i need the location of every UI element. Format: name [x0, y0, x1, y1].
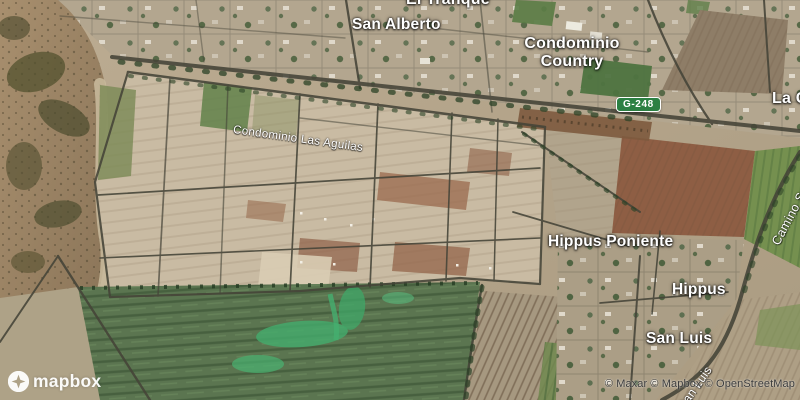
mapbox-wordmark: mapbox — [33, 371, 101, 392]
route-shield-g248: G-248 — [616, 97, 661, 112]
mapbox-logo[interactable]: mapbox — [8, 371, 101, 392]
satellite-terrain — [0, 0, 800, 400]
map-attribution[interactable]: © Maxar © Mapbox © OpenStreetMap — [605, 378, 795, 390]
mapbox-icon — [8, 371, 29, 392]
map-canvas[interactable]: El Tranque San Alberto Condominio Countr… — [0, 0, 800, 400]
